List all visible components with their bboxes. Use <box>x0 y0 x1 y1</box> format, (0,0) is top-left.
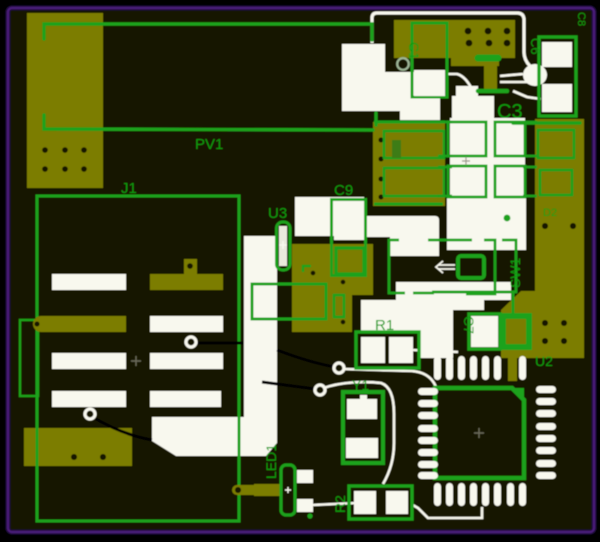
svg-text:R1: R1 <box>375 317 394 334</box>
svg-text:LED1: LED1 <box>263 444 279 479</box>
svg-text:SW1: SW1 <box>507 257 523 288</box>
svg-text:U2: U2 <box>535 353 553 369</box>
svg-text:C6: C6 <box>528 38 543 55</box>
svg-text:C9: C9 <box>334 182 353 199</box>
svg-text:C1: C1 <box>406 42 422 60</box>
svg-text:C8: C8 <box>575 12 587 26</box>
svg-text:R2: R2 <box>332 495 348 513</box>
svg-text:Y1: Y1 <box>352 377 369 393</box>
svg-text:PV1: PV1 <box>195 136 223 153</box>
svg-text:C3: C3 <box>497 101 523 123</box>
svg-text:C7: C7 <box>461 316 477 334</box>
svg-text:D2: D2 <box>543 207 557 219</box>
svg-text:U3: U3 <box>268 205 287 222</box>
svg-text:J1: J1 <box>121 180 137 197</box>
